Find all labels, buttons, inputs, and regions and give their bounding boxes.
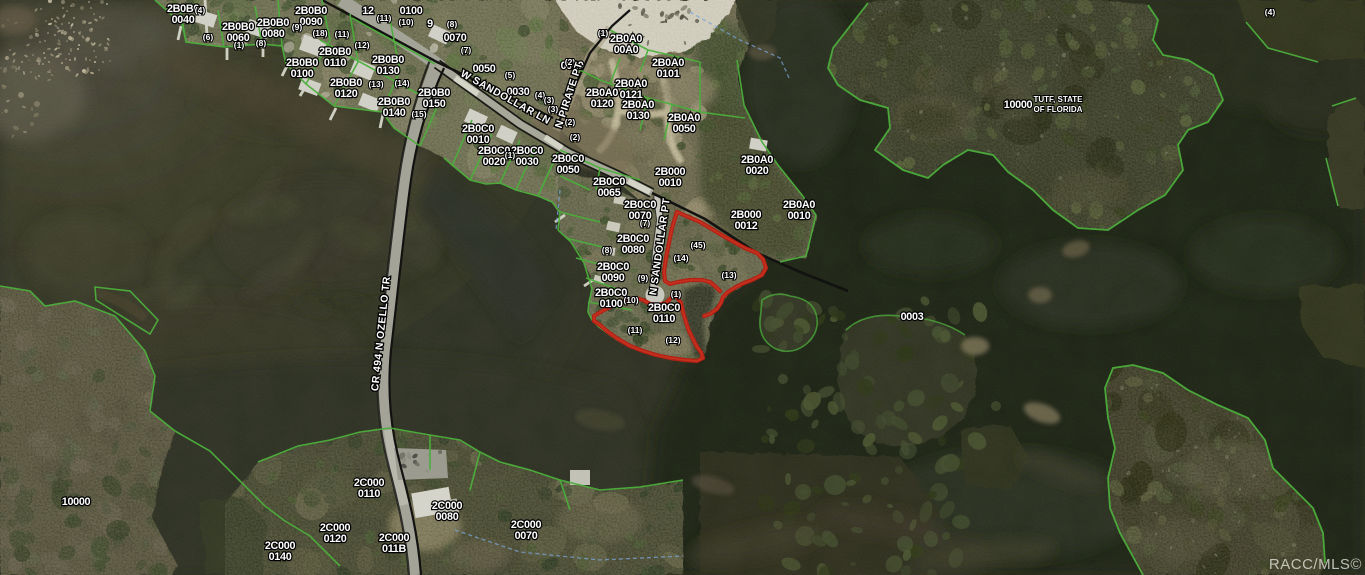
svg-text:0012: 0012	[735, 220, 758, 232]
svg-text:(3): (3)	[548, 104, 559, 114]
svg-text:(18): (18)	[312, 28, 327, 38]
svg-text:(9): (9)	[292, 22, 303, 32]
svg-text:10000: 10000	[1004, 99, 1033, 111]
svg-text:0090: 0090	[300, 16, 323, 28]
svg-text:(4): (4)	[195, 5, 206, 15]
svg-text:0050: 0050	[673, 123, 696, 135]
svg-text:0140: 0140	[383, 107, 406, 119]
svg-text:0110: 0110	[358, 488, 381, 500]
svg-text:0030: 0030	[516, 156, 539, 168]
svg-text:(15): (15)	[411, 109, 426, 119]
svg-text:(1): (1)	[598, 28, 609, 38]
svg-text:TUTF, STATE: TUTF, STATE	[1033, 95, 1083, 104]
svg-text:0080: 0080	[436, 511, 459, 523]
svg-text:(14): (14)	[394, 78, 409, 88]
svg-text:0020: 0020	[483, 156, 506, 168]
svg-text:0020: 0020	[746, 165, 769, 177]
svg-text:0090: 0090	[602, 272, 625, 284]
svg-text:(3): (3)	[544, 95, 555, 105]
svg-text:00A0: 00A0	[614, 44, 639, 56]
svg-text:RACC/MLS©: RACC/MLS©	[1269, 556, 1362, 573]
svg-text:0065: 0065	[598, 187, 621, 199]
svg-text:0110: 0110	[324, 57, 347, 69]
svg-text:0120: 0120	[335, 88, 358, 100]
svg-text:(1): (1)	[234, 40, 245, 50]
svg-text:(1): (1)	[671, 289, 682, 299]
svg-text:0040: 0040	[172, 14, 195, 26]
svg-text:0003: 0003	[901, 311, 924, 323]
svg-text:12: 12	[362, 5, 374, 17]
svg-text:(11): (11)	[377, 13, 392, 23]
svg-text:0010: 0010	[659, 177, 682, 189]
svg-text:(5): (5)	[505, 70, 516, 80]
svg-text:0080: 0080	[622, 244, 645, 256]
svg-text:0120: 0120	[324, 533, 347, 545]
svg-text:(11): (11)	[335, 29, 350, 39]
svg-text:0100: 0100	[600, 298, 623, 310]
svg-text:0130: 0130	[377, 65, 400, 77]
svg-text:0100: 0100	[400, 5, 423, 17]
svg-text:0130: 0130	[627, 110, 650, 122]
svg-text:(13): (13)	[721, 270, 736, 280]
svg-text:0010: 0010	[788, 210, 811, 222]
svg-text:(6): (6)	[203, 32, 214, 42]
svg-text:0070: 0070	[444, 32, 467, 44]
svg-text:0110: 0110	[653, 313, 676, 325]
svg-text:(7): (7)	[640, 218, 651, 228]
svg-text:(4): (4)	[1265, 7, 1276, 17]
svg-text:OF FLORIDA: OF FLORIDA	[1034, 105, 1083, 114]
svg-text:(1): (1)	[505, 150, 516, 160]
svg-text:011B: 011B	[382, 543, 407, 555]
svg-text:(12): (12)	[665, 335, 680, 345]
svg-text:9: 9	[427, 18, 433, 30]
svg-text:(12): (12)	[354, 40, 369, 50]
svg-text:(8): (8)	[602, 245, 613, 255]
svg-text:(45): (45)	[690, 240, 705, 250]
svg-text:(7): (7)	[461, 45, 472, 55]
svg-text:(10): (10)	[398, 17, 413, 27]
svg-text:(13): (13)	[368, 79, 383, 89]
svg-text:0120: 0120	[591, 98, 614, 110]
svg-text:0070: 0070	[515, 530, 538, 542]
svg-text:(2): (2)	[570, 132, 581, 142]
svg-text:(9): (9)	[638, 273, 649, 283]
svg-text:(11): (11)	[628, 325, 643, 335]
svg-text:0101: 0101	[657, 68, 680, 80]
svg-text:(8): (8)	[256, 38, 267, 48]
svg-text:(8): (8)	[447, 19, 458, 29]
svg-text:10000: 10000	[62, 496, 91, 508]
svg-text:(14): (14)	[673, 253, 688, 263]
svg-text:0050: 0050	[473, 63, 496, 75]
svg-text:(10): (10)	[623, 295, 638, 305]
svg-text:0100: 0100	[291, 68, 314, 80]
svg-text:0050: 0050	[557, 164, 580, 176]
svg-text:0140: 0140	[269, 551, 292, 563]
